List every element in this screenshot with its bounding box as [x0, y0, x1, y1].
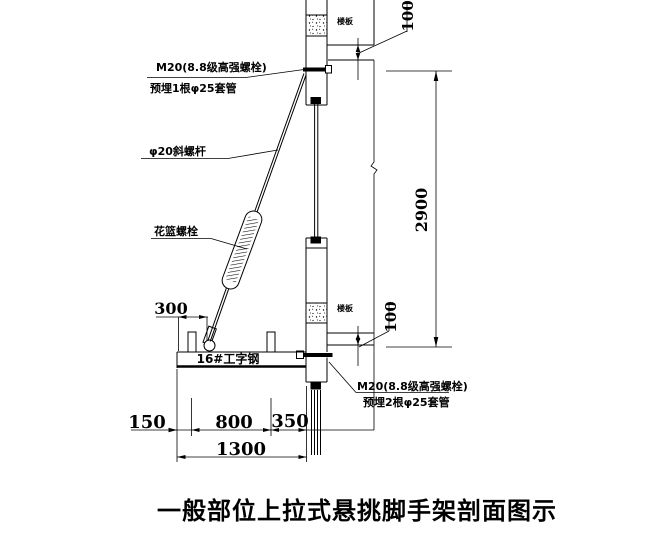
lower-rod-nut: [311, 382, 322, 390]
turnbuckle-body: [220, 209, 265, 292]
lower-slab-concrete-hatch: [307, 304, 327, 323]
i-beam-label: 16#工字钢: [197, 351, 260, 366]
turnbuckle-leader: [151, 239, 247, 250]
lower-wall-column: [306, 238, 327, 455]
dim-text-2900: 2900: [412, 188, 431, 233]
scaffold-section-drawing: M20(8.8级高强螺栓) 预埋1根φ25套管 φ20斜螺杆 花篮螺栓 16#工…: [0, 0, 662, 542]
lower-anchor-label-line1: M20(8.8级高强螺栓): [357, 379, 468, 393]
lower-anchor-label-line2: 预埋2根φ25套管: [363, 395, 450, 409]
upper-slab-concrete-hatch: [307, 16, 327, 36]
dim-text-350: 350: [271, 411, 309, 432]
dim-text-800: 800: [215, 412, 253, 433]
upper-wall-column: [306, 0, 327, 105]
dim-text-150: 150: [128, 412, 166, 433]
upper-anchor-label-line1: M20(8.8级高强螺栓): [156, 60, 267, 74]
scaffold-posts: [188, 332, 275, 352]
dim-text-lower-100: 100: [382, 301, 400, 332]
upper-floor-slab-edge: [327, 0, 374, 60]
drawing-title: 一般部位上拉式悬挑脚手架剖面图示: [157, 497, 557, 525]
lower-floor-slab-label: 楼板: [337, 303, 354, 313]
upper-anchor-label-line2: 预埋1根φ25套管: [150, 81, 237, 95]
vertical-hanger-rod: [311, 97, 322, 244]
dim-text-1300: 1300: [216, 439, 266, 460]
diagonal-rod-label: φ20斜螺杆: [149, 144, 206, 158]
diagonal-tie-rod: [208, 74, 306, 342]
wall-break-line: [371, 60, 377, 430]
dim-lug-offset-300: [156, 315, 208, 351]
drawing-canvas: M20(8.8级高强螺栓) 预埋1根φ25套管 φ20斜螺杆 花篮螺栓 16#工…: [0, 0, 662, 542]
upper-anchor-bolt: [303, 66, 332, 74]
dim-text-upper-100: 100: [399, 0, 417, 31]
turnbuckle-label: 花篮螺栓: [154, 224, 198, 238]
upper-floor-slab-label: 楼板: [337, 16, 354, 26]
rod-top-nut: [311, 97, 322, 104]
dim-text-300: 300: [154, 299, 187, 318]
